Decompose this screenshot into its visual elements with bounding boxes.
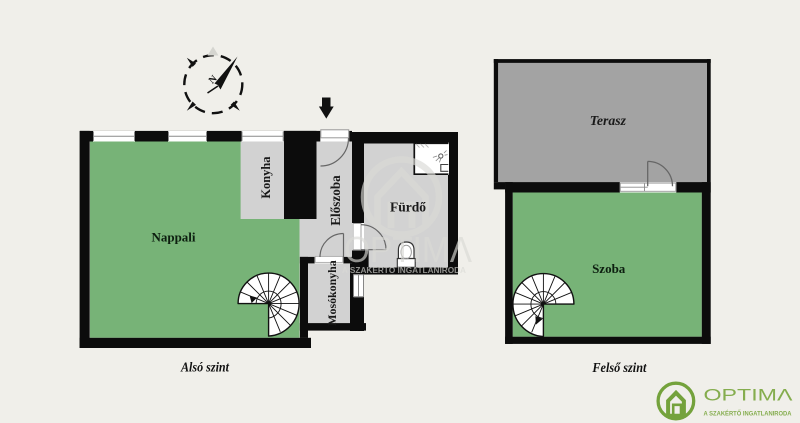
- svg-text:Előszoba: Előszoba: [328, 175, 343, 226]
- svg-text:Szoba: Szoba: [592, 261, 626, 276]
- svg-text:A SZAKÉRTŐ INGATLANIRODA: A SZAKÉRTŐ INGATLANIRODA: [704, 408, 792, 417]
- svg-text:Terasz: Terasz: [590, 113, 627, 128]
- svg-text:Alsó szint: Alsó szint: [180, 361, 230, 376]
- svg-text:A SZAKÉRTŐ INGATLANIRODA: A SZAKÉRTŐ INGATLANIRODA: [342, 266, 466, 275]
- svg-text:Nappali: Nappali: [151, 230, 195, 245]
- svg-text:OPTIMΛ: OPTIMΛ: [344, 229, 472, 270]
- svg-text:Konyha: Konyha: [259, 157, 273, 199]
- svg-text:Fürdő: Fürdő: [390, 199, 426, 214]
- svg-text:OPTIMΛ: OPTIMΛ: [704, 386, 793, 404]
- svg-text:Felső szint: Felső szint: [592, 361, 648, 376]
- svg-text:Mosókonyha: Mosókonyha: [325, 260, 339, 325]
